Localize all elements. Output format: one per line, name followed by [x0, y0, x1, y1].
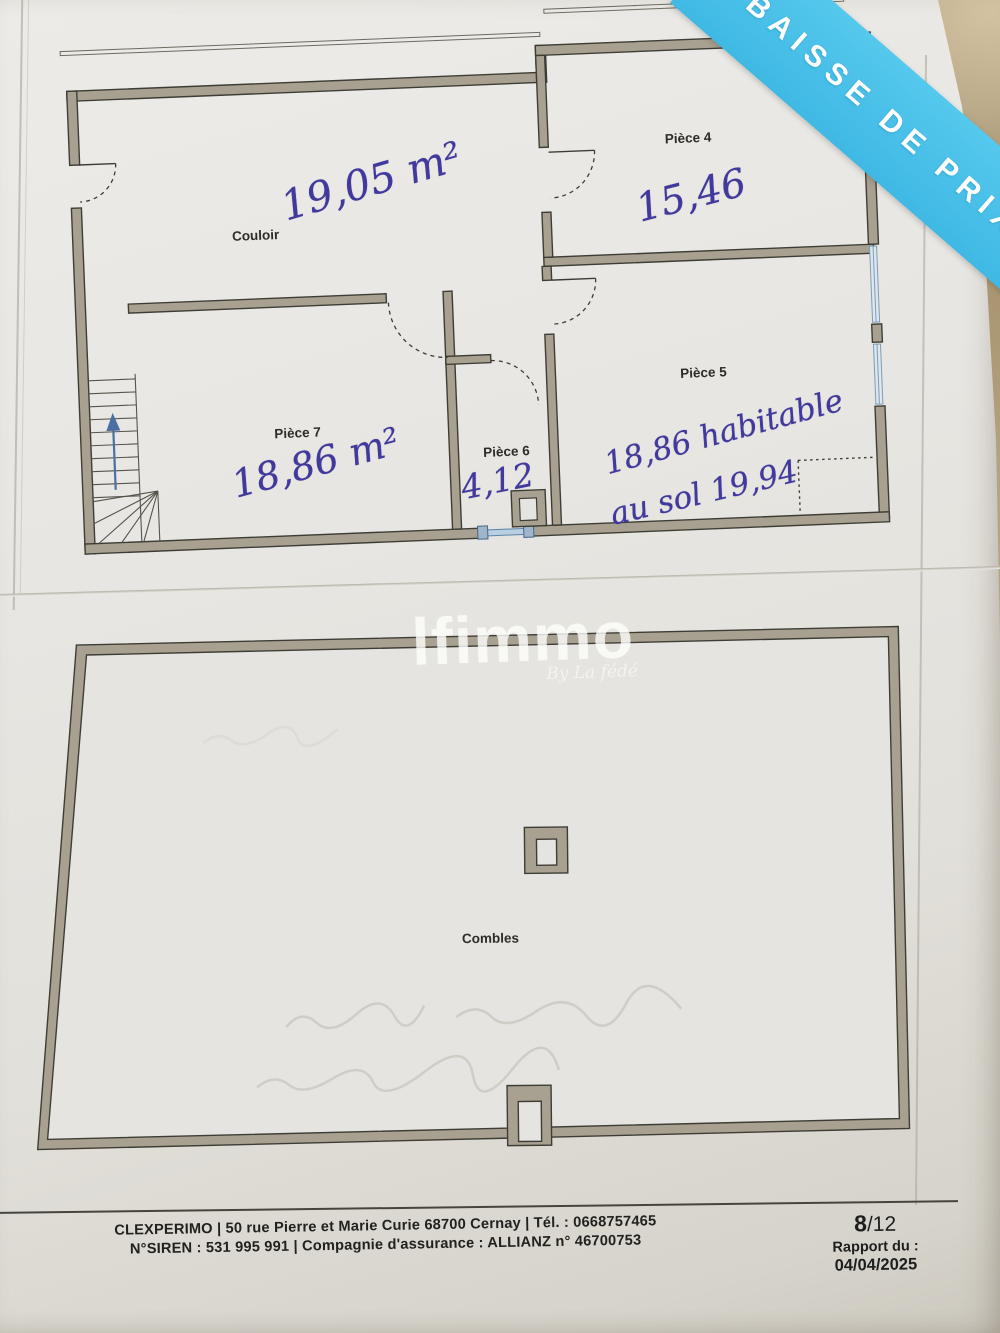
dashed-zone-piece5 [798, 457, 878, 514]
page-total: /12 [867, 1213, 897, 1237]
room-label-combles: Combles [462, 930, 519, 946]
stair-direction-arrow-icon [106, 413, 123, 490]
chimney-south [507, 1085, 552, 1145]
window-icon-east-1 [870, 246, 880, 322]
room-label-piece4: Pièce 4 [665, 130, 713, 147]
page-current: 8 [854, 1210, 867, 1236]
winder-steps [93, 491, 160, 544]
lower-floor-plan: Combles [22, 620, 918, 1159]
report-date-label: Rapport du : [798, 1238, 953, 1257]
room-label-couloir: Couloir [232, 227, 281, 244]
page-number: 8/12 [797, 1209, 952, 1239]
report-date-value: 04/04/2025 [798, 1255, 953, 1277]
room-label-piece5: Pièce 5 [680, 364, 728, 381]
staircase [88, 373, 160, 543]
window-icon-east-2 [873, 344, 882, 404]
agency-watermark: lfimmo By La fédé [382, 603, 665, 689]
room-label-piece7: Pièce 7 [274, 425, 321, 442]
chimney-center [524, 827, 567, 873]
page-info: 8/12 Rapport du : 04/04/2025 [797, 1209, 953, 1277]
photographed-report-page: Couloir Pièce 4 Pièce 5 Pièce 6 Pièce 7 … [0, 0, 1000, 1333]
lower-floor-plan-drawing: Combles [22, 620, 918, 1159]
